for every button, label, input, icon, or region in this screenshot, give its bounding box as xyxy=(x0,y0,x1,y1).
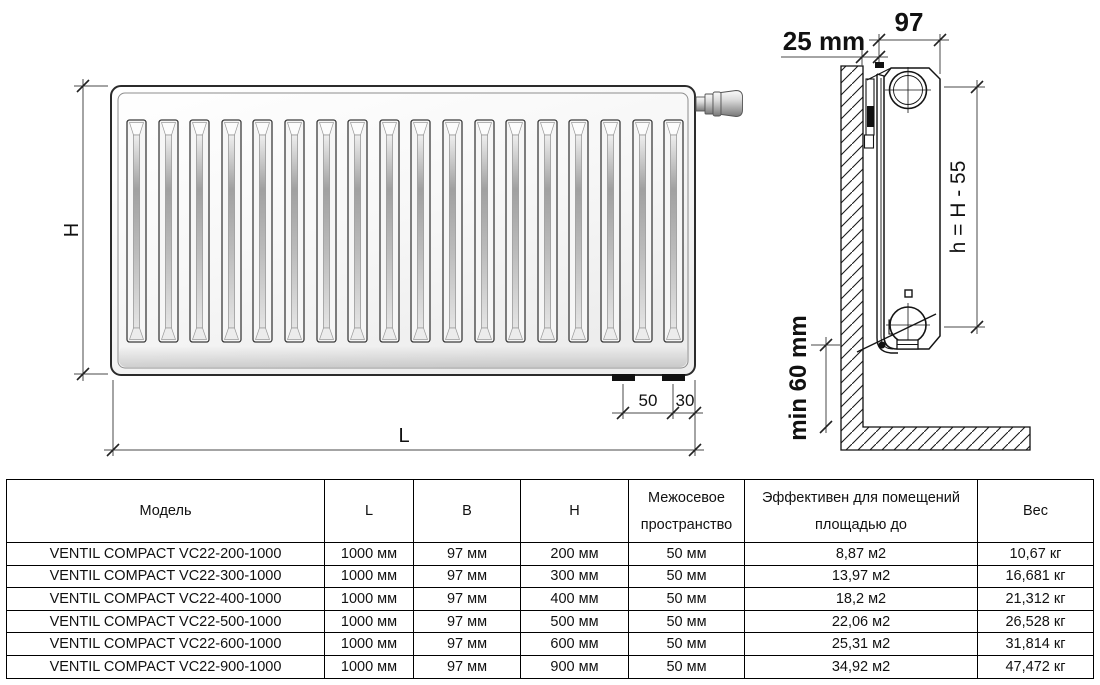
drain-plug xyxy=(905,290,912,297)
cell-model: VENTIL COMPACT VC22-300-1000 xyxy=(7,565,325,588)
cell-weight: 21,312 кг xyxy=(978,588,1094,611)
label-wall-gap: 25 mm xyxy=(783,26,865,56)
label-axis-height: h = H - 55 xyxy=(947,161,970,254)
cell-area: 25,31 м2 xyxy=(745,633,978,656)
col-header-model: Модель xyxy=(7,480,325,543)
col-header-b: B xyxy=(414,480,521,543)
radiator-front-view xyxy=(111,86,743,381)
cell-area: 22,06 м2 xyxy=(745,610,978,633)
cell-spacing: 50 мм xyxy=(629,610,745,633)
cell-spacing: 50 мм xyxy=(629,565,745,588)
cell-b: 97 мм xyxy=(414,655,521,678)
cell-spacing: 50 мм xyxy=(629,633,745,656)
cell-h: 300 мм xyxy=(521,565,629,588)
label-floor-gap: min 60 mm xyxy=(785,315,812,440)
label-30: 30 xyxy=(676,391,695,410)
technical-drawing: H L 50 30 xyxy=(0,0,1100,478)
label-50: 50 xyxy=(639,391,658,410)
cell-l: 1000 мм xyxy=(325,543,414,566)
cell-spacing: 50 мм xyxy=(629,543,745,566)
col-header-weight: Вес xyxy=(978,480,1094,543)
cell-b: 97 мм xyxy=(414,565,521,588)
label-depth-97: 97 xyxy=(895,7,924,37)
cell-area: 13,97 м2 xyxy=(745,565,978,588)
cell-spacing: 50 мм xyxy=(629,588,745,611)
cell-b: 97 мм xyxy=(414,588,521,611)
cell-model: VENTIL COMPACT VC22-600-1000 xyxy=(7,633,325,656)
cell-model: VENTIL COMPACT VC22-200-1000 xyxy=(7,543,325,566)
spec-table: Модель L B H Межосевое пространство Эффе… xyxy=(6,479,1094,679)
cell-area: 8,87 м2 xyxy=(745,543,978,566)
bracket-clip xyxy=(875,62,884,68)
cell-weight: 47,472 кг xyxy=(978,655,1094,678)
cell-b: 97 мм xyxy=(414,633,521,656)
label-length: L xyxy=(398,425,409,447)
bottom-connection-stub xyxy=(612,374,635,381)
cell-h: 900 мм xyxy=(521,655,629,678)
cell-model: VENTIL COMPACT VC22-500-1000 xyxy=(7,610,325,633)
header-row: Модель L B H Межосевое пространство Эффе… xyxy=(7,480,1094,543)
table-row: VENTIL COMPACT VC22-900-1000 1000 мм 97 … xyxy=(7,655,1094,678)
col-header-area: Эффективен для помещений площадью до xyxy=(745,480,978,543)
thermostat-valve xyxy=(696,91,743,117)
cell-spacing: 50 мм xyxy=(629,655,745,678)
table-row: VENTIL COMPACT VC22-600-1000 1000 мм 97 … xyxy=(7,633,1094,656)
col-header-l: L xyxy=(325,480,414,543)
table-row: VENTIL COMPACT VC22-300-1000 1000 мм 97 … xyxy=(7,565,1094,588)
radiator-side-view xyxy=(841,62,1030,450)
cell-weight: 26,528 кг xyxy=(978,610,1094,633)
radiator-spec-sheet: H L 50 30 xyxy=(0,0,1100,685)
bottom-connection-stub xyxy=(662,374,685,381)
cell-l: 1000 мм xyxy=(325,633,414,656)
cell-weight: 31,814 кг xyxy=(978,633,1094,656)
cell-b: 97 мм xyxy=(414,543,521,566)
cell-l: 1000 мм xyxy=(325,565,414,588)
cell-weight: 16,681 кг xyxy=(978,565,1094,588)
cell-l: 1000 мм xyxy=(325,655,414,678)
dim-floor-gap xyxy=(811,337,840,433)
cell-area: 18,2 м2 xyxy=(745,588,978,611)
label-height: H xyxy=(61,223,83,237)
table-row: VENTIL COMPACT VC22-200-1000 1000 мм 97 … xyxy=(7,543,1094,566)
cell-l: 1000 мм xyxy=(325,588,414,611)
cell-h: 400 мм xyxy=(521,588,629,611)
cell-model: VENTIL COMPACT VC22-900-1000 xyxy=(7,655,325,678)
cell-h: 500 мм xyxy=(521,610,629,633)
col-header-spacing: Межосевое пространство xyxy=(629,480,745,543)
cell-area: 34,92 м2 xyxy=(745,655,978,678)
cell-h: 600 мм xyxy=(521,633,629,656)
cell-l: 1000 мм xyxy=(325,610,414,633)
cell-model: VENTIL COMPACT VC22-400-1000 xyxy=(7,588,325,611)
table-row: VENTIL COMPACT VC22-400-1000 1000 мм 97 … xyxy=(7,588,1094,611)
col-header-h: H xyxy=(521,480,629,543)
cell-h: 200 мм xyxy=(521,543,629,566)
cell-weight: 10,67 кг xyxy=(978,543,1094,566)
cell-b: 97 мм xyxy=(414,610,521,633)
table-row: VENTIL COMPACT VC22-500-1000 1000 мм 97 … xyxy=(7,610,1094,633)
